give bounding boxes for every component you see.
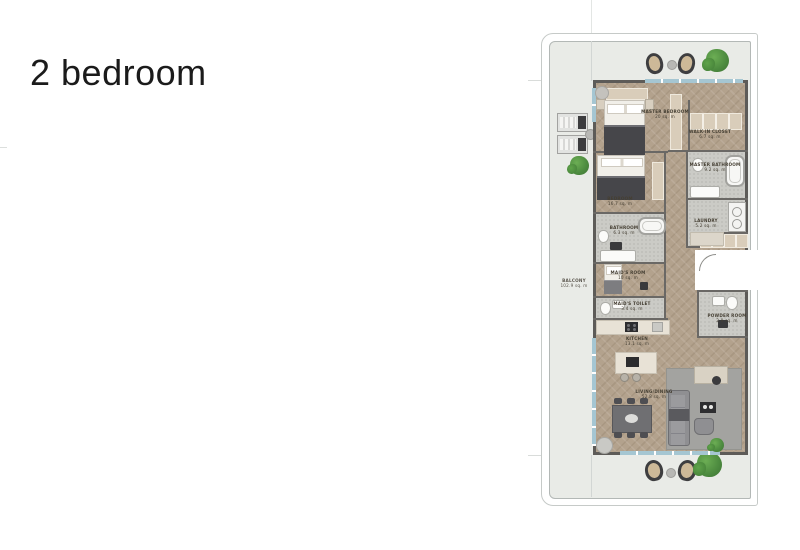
washing-machine [728,202,746,232]
room-label-kitchen: KITCHEN 13.1 sq. m [625,336,649,347]
room-label-bedroom: BEDROOM 16.7 sq. m [607,196,632,207]
bathtub [638,217,666,235]
window [592,338,596,446]
wall [688,198,748,200]
cooktop [626,357,639,367]
laundry-basket [610,242,622,250]
bar-stool [620,373,629,382]
wall [668,150,748,152]
wardrobe [652,162,664,200]
bar-stool [632,373,641,382]
balcony-side-table [666,468,676,478]
dining-chair [614,432,622,438]
grid-tick-page-edge [0,147,7,148]
wall [686,152,688,248]
room-label-master-bedroom: MASTER BEDROOM 20 sq. m [641,109,689,120]
grid-line-vertical [591,0,592,33]
grid-tick-left-bottom [528,455,541,456]
room-label-maids-toilet: MAID'S TOILET 3.4 sq. m [613,301,650,312]
room-label-walk-in-closet: WALK-IN CLOSET 6.7 sq. m [689,129,731,140]
dining-table [612,405,652,433]
media-console [694,366,728,384]
vanity-sink [600,250,636,262]
closet-shelving [670,94,682,150]
bed-master [604,100,645,155]
pouf [595,86,609,100]
wall [593,212,664,214]
closet-shelving [690,113,742,130]
potted-plant [710,438,724,452]
ottoman [596,437,613,454]
window [645,79,743,83]
stool [640,282,648,290]
bed-second [597,155,645,200]
armchair [694,418,714,435]
vanity-sink [690,186,720,198]
wardrobe [606,88,648,100]
room-label-balcony: BALCONY 102.9 sq. m [560,278,587,289]
room-label-laundry: LAUNDRY 5.2 sq. m [694,218,718,229]
room-label-bathroom: BATHROOM 6.3 sq. m [610,225,639,236]
toilet [726,296,738,310]
room-label-living-dining: LIVING/DINING 52.8 sq. m [635,389,672,400]
window [620,451,720,455]
dining-chair [614,398,622,404]
wall [697,292,699,338]
grid-tick-left-top [528,80,541,81]
toilet [598,230,609,243]
sun-lounger [557,135,588,154]
floor-plan: MASTER BEDROOM 20 sq. m WALK-IN CLOSET 6… [0,0,800,550]
stove [625,322,638,332]
wall [664,153,666,318]
dining-chair [640,432,648,438]
coffee-table [700,402,716,413]
wall [593,296,666,298]
balcony-divider [591,455,592,497]
potted-plant [706,49,729,72]
dining-chair [627,398,635,404]
balcony-side-table [667,60,677,70]
wall [697,336,748,338]
room-label-master-bathroom: MASTER BATHROOM 9.2 sq. m [690,162,741,173]
room-label-powder-room: POWDER ROOM 2.9 sq. m [708,313,747,324]
chair [712,376,721,385]
wall [697,290,748,292]
toilet [600,302,611,315]
kitchen-sink [652,322,663,332]
potted-plant [570,156,589,175]
laundry-counter [690,232,724,246]
sink [712,296,725,306]
dining-chair [627,432,635,438]
sun-lounger [557,113,588,132]
balcony-divider [591,41,592,81]
room-label-maids-room: MAID'S ROOM 10 sq. m [611,270,646,281]
potted-plant [697,452,722,477]
